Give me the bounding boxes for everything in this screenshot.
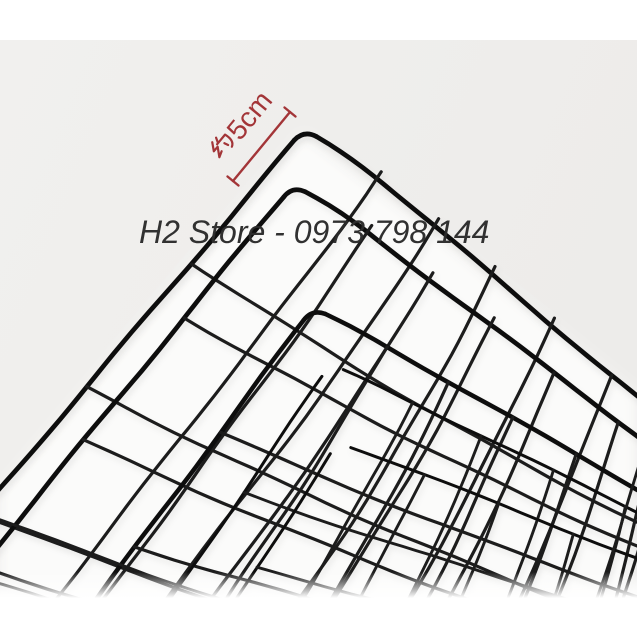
svg-text:H2 Store - 0973 798 144: H2 Store - 0973 798 144 (139, 214, 489, 250)
